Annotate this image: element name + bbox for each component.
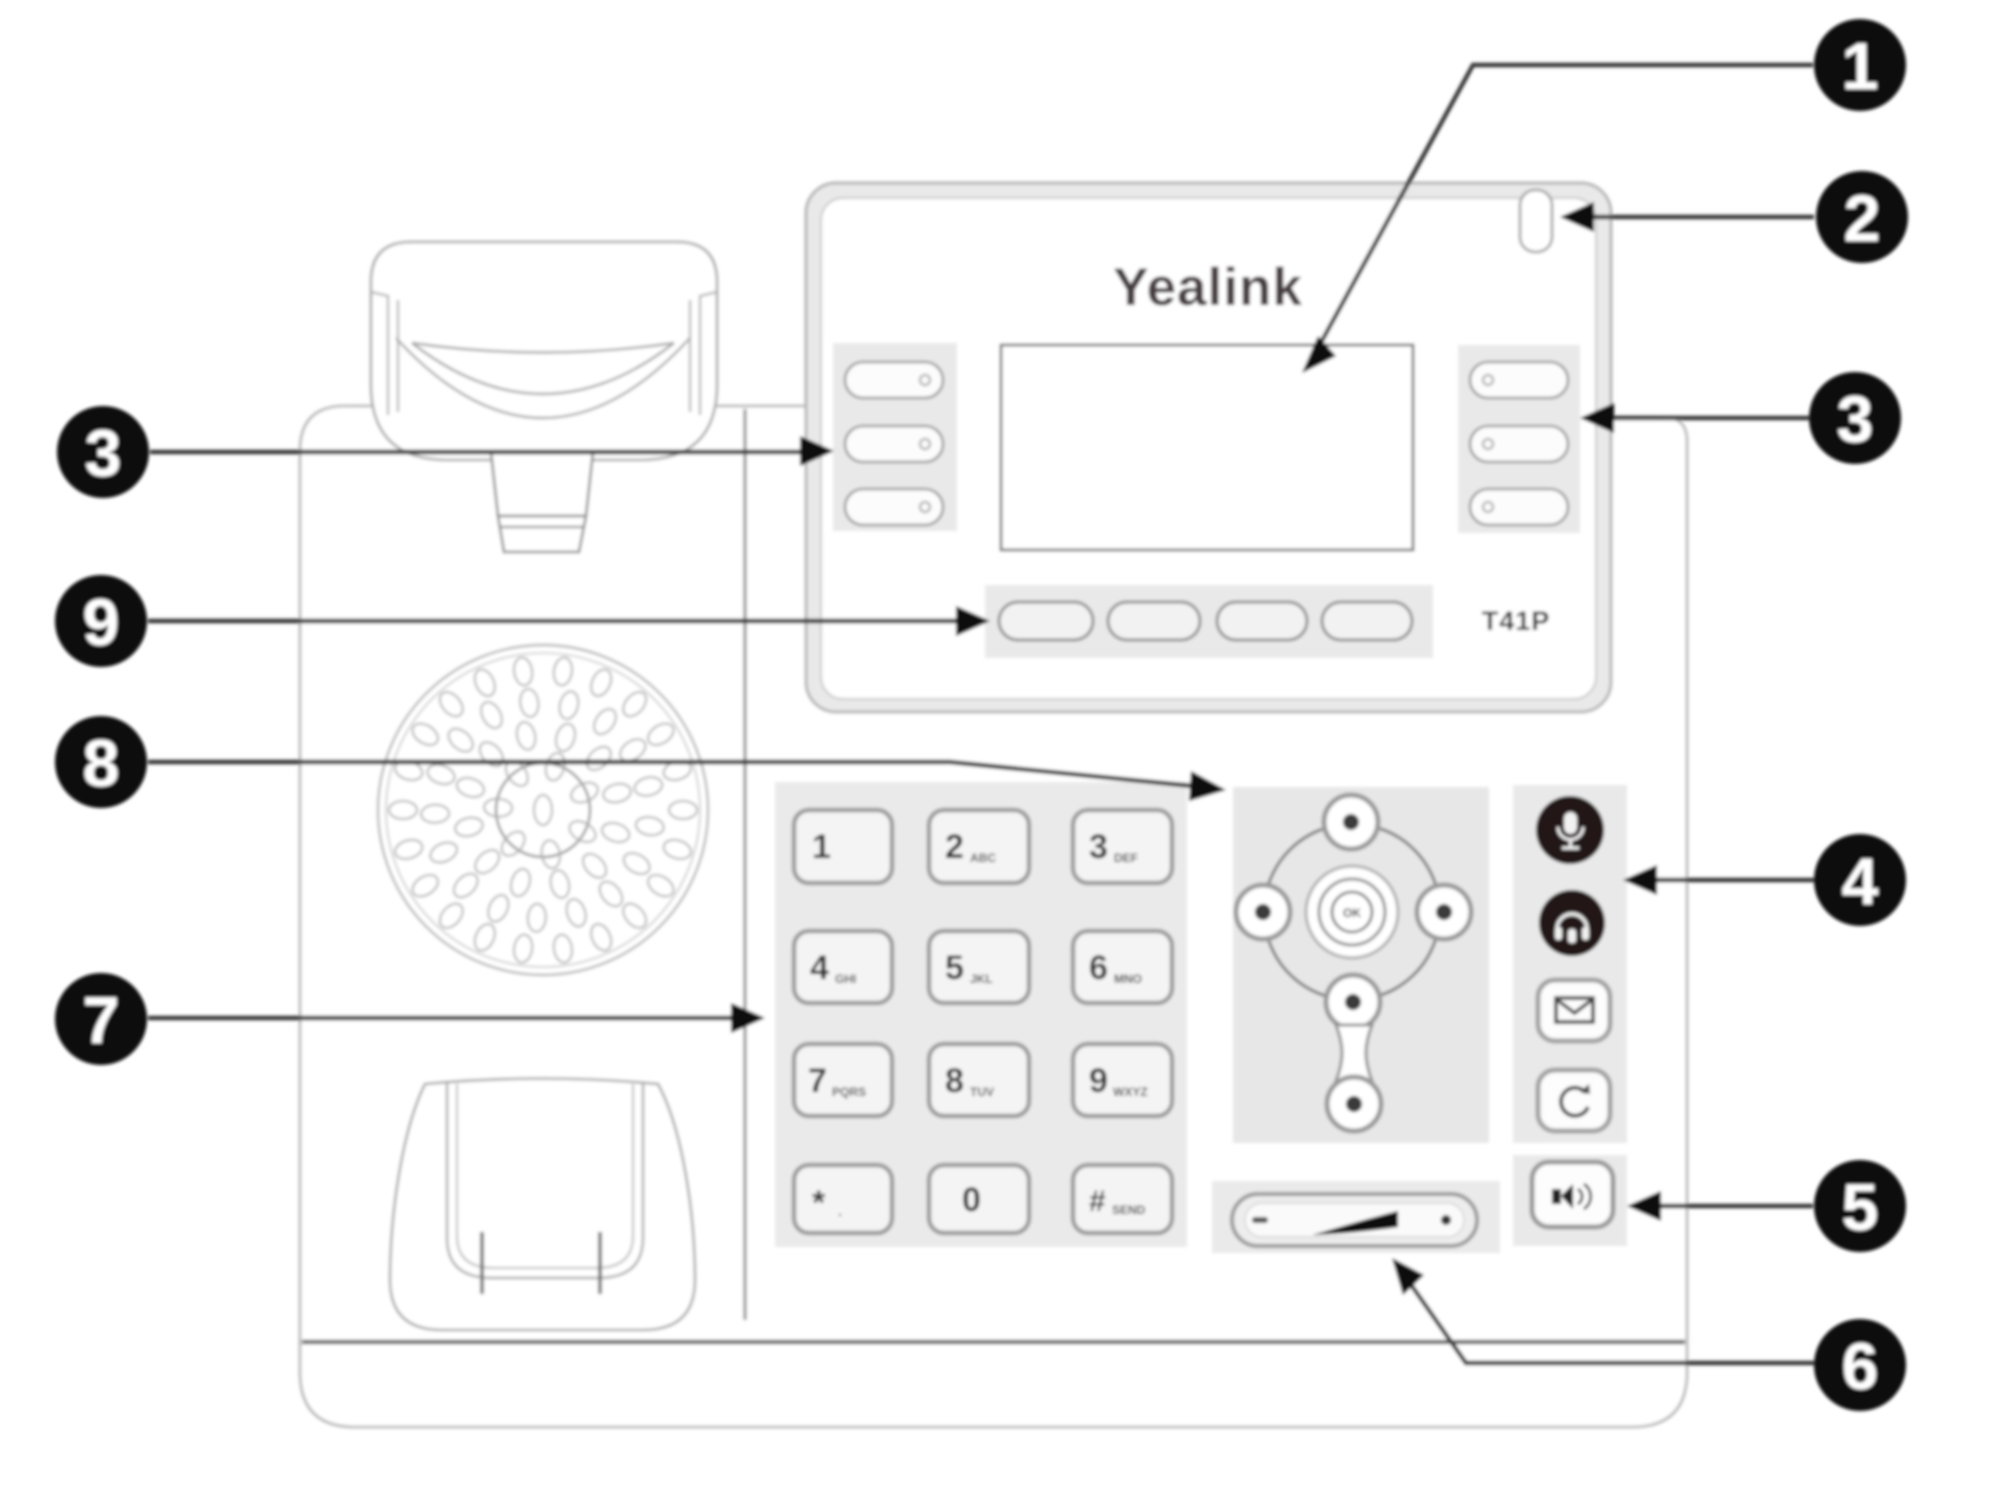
- svg-text:MNO: MNO: [1114, 972, 1142, 986]
- svg-text:1: 1: [1842, 29, 1879, 103]
- svg-text:2: 2: [1844, 181, 1881, 255]
- svg-text:*: *: [812, 1184, 826, 1222]
- svg-text:8: 8: [945, 1062, 964, 1100]
- svg-text:4: 4: [810, 949, 829, 987]
- svg-text:#: #: [1089, 1185, 1106, 1218]
- svg-text:5: 5: [1842, 1170, 1879, 1244]
- svg-text:9: 9: [1089, 1062, 1108, 1100]
- svg-text:7: 7: [83, 983, 120, 1057]
- svg-text:.: .: [838, 1203, 842, 1219]
- svg-text:3: 3: [1089, 828, 1108, 866]
- svg-text:PQRS: PQRS: [832, 1085, 866, 1099]
- svg-text:ABC: ABC: [970, 851, 996, 865]
- svg-text:TUV: TUV: [970, 1085, 994, 1099]
- svg-text:3: 3: [85, 416, 122, 490]
- svg-text:7: 7: [808, 1062, 827, 1100]
- svg-text:GHI: GHI: [835, 972, 856, 986]
- svg-text:WXYZ: WXYZ: [1113, 1085, 1148, 1099]
- svg-text:3: 3: [1837, 382, 1874, 456]
- svg-text:6: 6: [1842, 1329, 1879, 1403]
- svg-text:6: 6: [1089, 949, 1108, 987]
- svg-text:9: 9: [83, 585, 120, 659]
- svg-text:JKL: JKL: [970, 972, 993, 986]
- svg-text:4: 4: [1842, 844, 1879, 918]
- svg-text:T41P: T41P: [1482, 606, 1551, 636]
- svg-text:0: 0: [962, 1181, 981, 1219]
- svg-text:DEF: DEF: [1114, 851, 1138, 865]
- svg-text:SEND: SEND: [1112, 1203, 1146, 1217]
- svg-text:Yealink: Yealink: [1113, 258, 1303, 317]
- svg-text:8: 8: [83, 726, 120, 800]
- svg-text:2: 2: [945, 828, 964, 866]
- svg-text:5: 5: [945, 949, 964, 987]
- svg-text:1: 1: [812, 828, 831, 866]
- svg-text:OK: OK: [1343, 906, 1361, 920]
